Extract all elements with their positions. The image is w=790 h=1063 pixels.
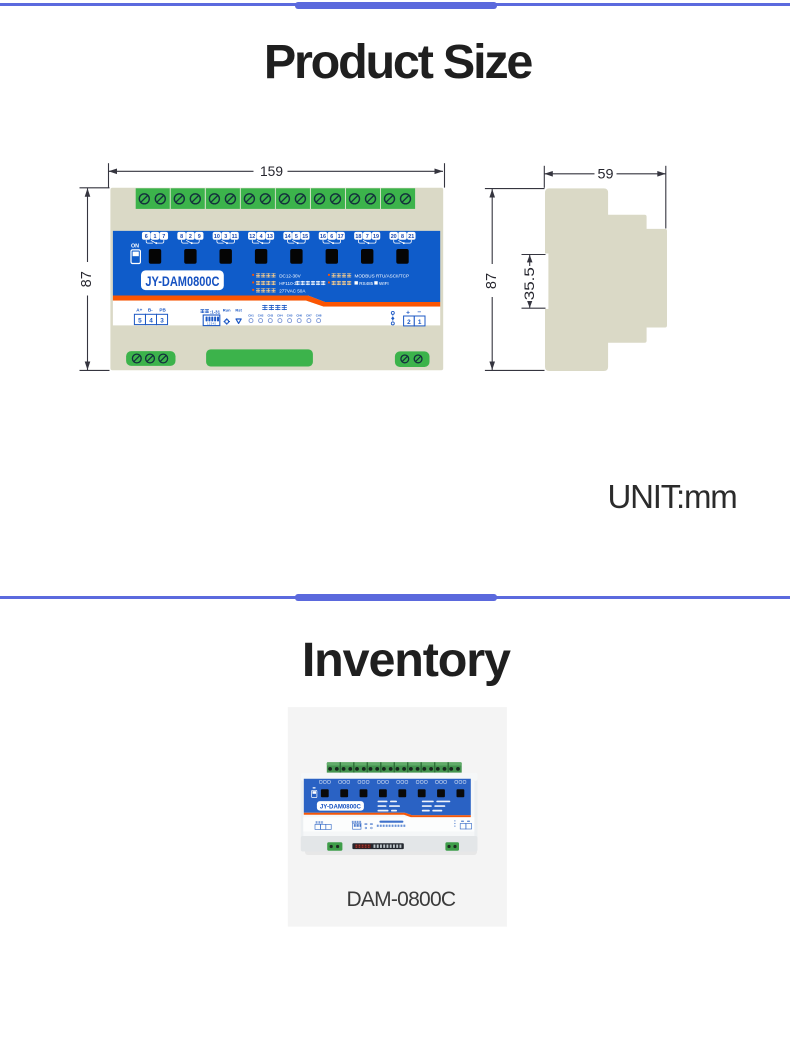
svg-text:JY-DAM0800C: JY-DAM0800C	[320, 804, 361, 811]
